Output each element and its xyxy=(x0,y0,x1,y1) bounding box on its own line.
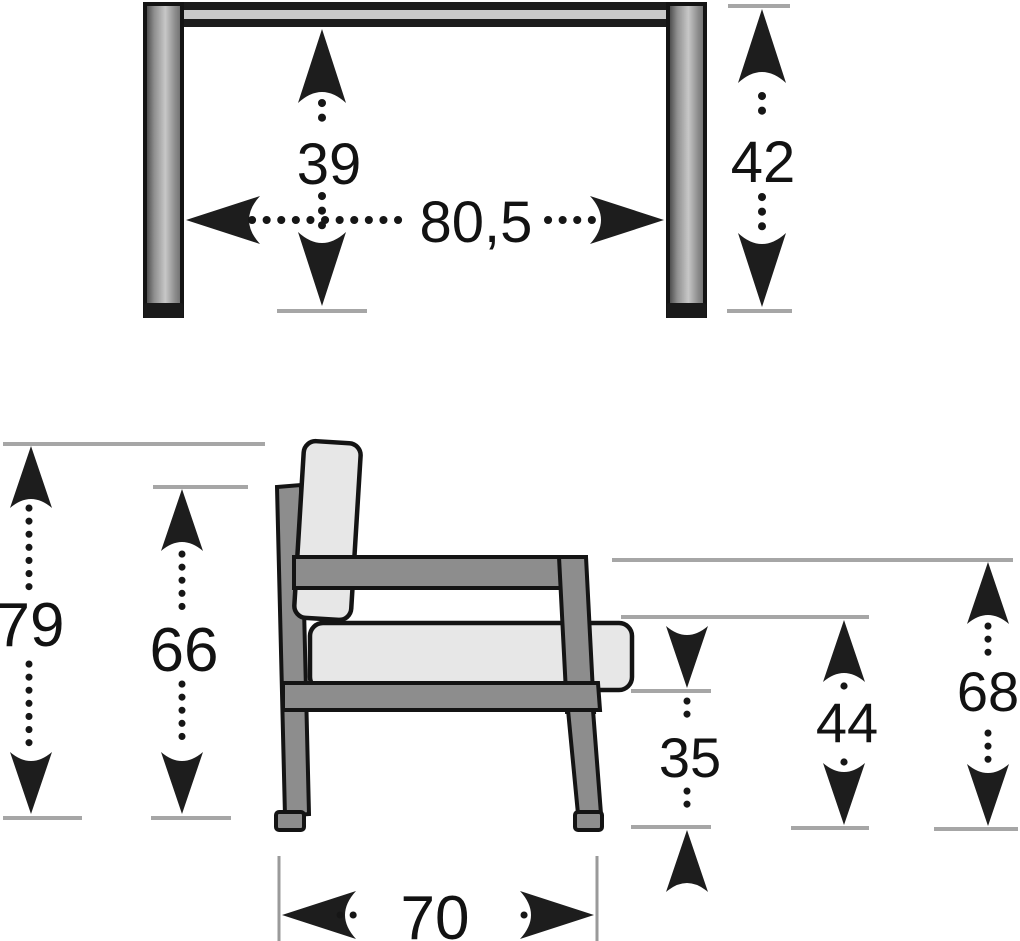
dimension-label-66: 66 xyxy=(150,616,219,685)
arrow-up-icon xyxy=(10,446,52,508)
arrow-up-icon xyxy=(738,9,786,83)
dimension-label-42: 42 xyxy=(731,130,796,195)
dimension-label-39: 39 xyxy=(297,132,362,197)
chair-back-cushion xyxy=(294,440,362,620)
dimension-label-35: 35 xyxy=(659,726,721,789)
arrow-down-icon xyxy=(823,763,865,825)
arrow-down-icon xyxy=(10,752,52,814)
table-top-rail-stripe xyxy=(184,10,666,19)
arrow-down-icon xyxy=(738,233,786,307)
arrow-down-icon xyxy=(967,764,1009,826)
dimension-label-80-5: 80,5 xyxy=(420,190,533,255)
arrow-right-icon xyxy=(590,196,664,244)
dot xyxy=(840,758,847,765)
top-view-frame xyxy=(144,2,706,318)
dimension-label-70: 70 xyxy=(401,884,470,941)
diagram-canvas: 39 80,5 42 79 xyxy=(0,0,1020,941)
arrow-up-icon xyxy=(298,29,346,103)
side-view-armchair xyxy=(276,440,632,830)
dimension-label-68: 68 xyxy=(957,660,1019,723)
dimension-35: 35 xyxy=(631,626,721,892)
dimension-label-44: 44 xyxy=(816,691,878,754)
table-leg-left xyxy=(145,4,182,316)
arrow-down-icon xyxy=(298,232,346,306)
chair-armrest xyxy=(294,557,586,588)
arrow-left-icon xyxy=(282,891,356,939)
dimension-79: 79 xyxy=(0,444,265,818)
table-leg-left-cap xyxy=(144,303,183,318)
dimension-42: 42 xyxy=(727,6,795,311)
table-leg-right xyxy=(668,4,705,316)
dimension-68: 68 xyxy=(934,562,1019,829)
arrow-up-icon xyxy=(666,830,708,892)
dimension-label-79: 79 xyxy=(0,591,64,660)
dimension-66: 66 xyxy=(150,487,248,818)
dimension-70: 70 xyxy=(279,856,597,941)
table-leg-right-cap xyxy=(667,303,706,318)
chair-rear-foot xyxy=(276,812,304,830)
arrow-right-icon xyxy=(520,891,594,939)
arrow-up-icon xyxy=(967,562,1009,624)
dimension-44: 44 xyxy=(791,620,878,828)
furniture-dimension-diagram: 39 80,5 42 79 xyxy=(0,0,1020,941)
dimension-39: 39 xyxy=(277,29,367,311)
chair-front-foot xyxy=(575,812,602,830)
dimension-80-5: 80,5 xyxy=(186,190,664,255)
chair-front-leg xyxy=(568,710,601,814)
chair-seat-rail xyxy=(283,683,600,710)
arrow-down-icon xyxy=(666,626,708,688)
arrow-down-icon xyxy=(161,752,203,814)
arrow-up-icon xyxy=(823,620,865,682)
arrow-up-icon xyxy=(161,489,203,551)
dot xyxy=(840,682,847,689)
